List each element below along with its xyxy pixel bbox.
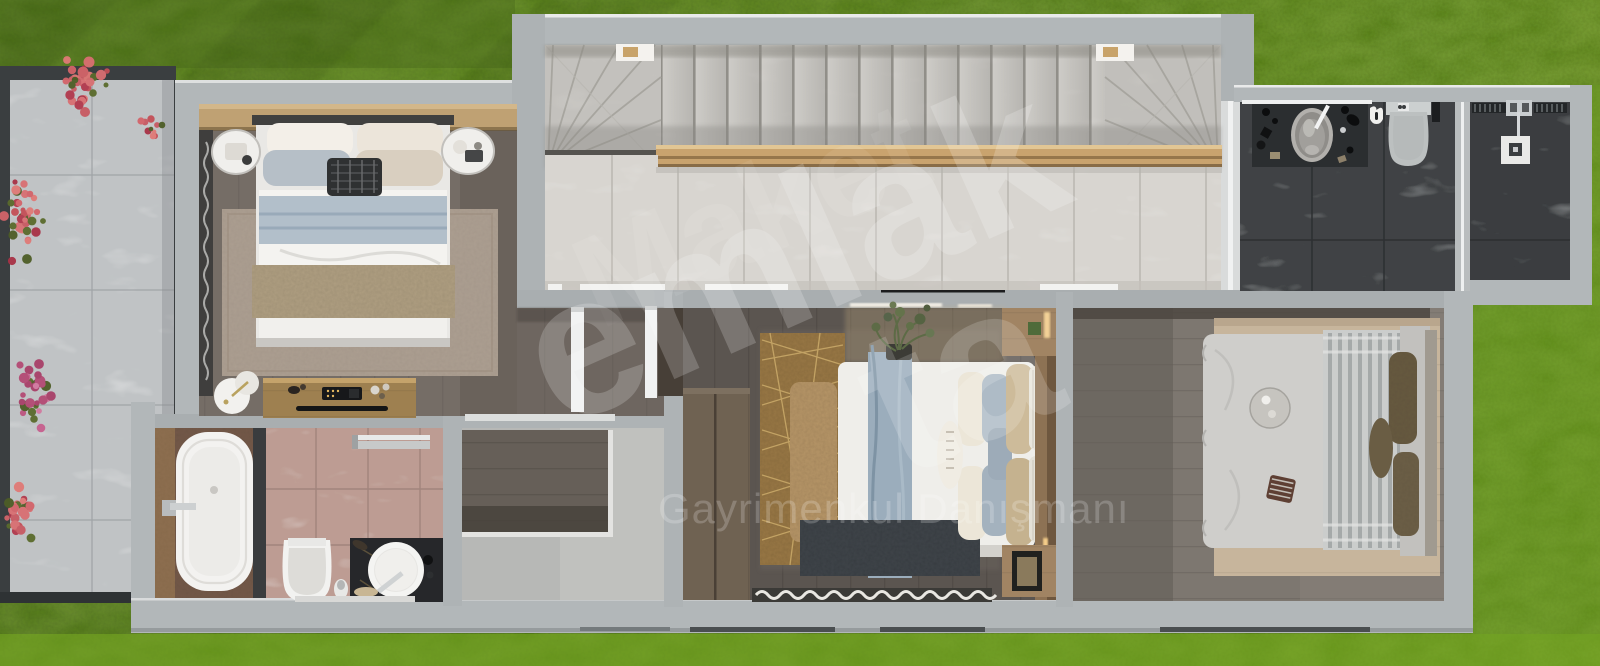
svg-text:Gayrimenkul Danışmanı: Gayrimenkul Danışmanı <box>658 485 1130 532</box>
